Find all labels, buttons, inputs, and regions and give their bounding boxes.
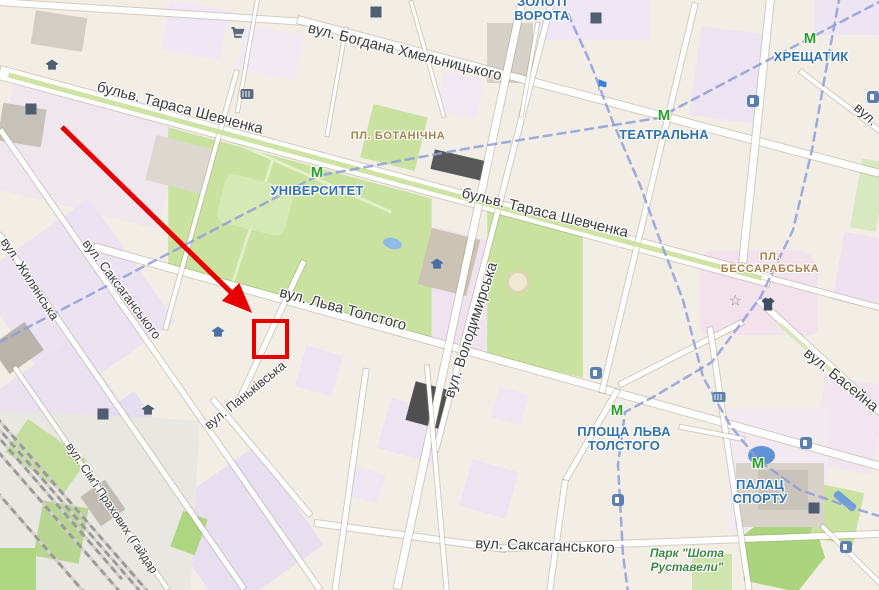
metro-station-ploshcha-lva-tolstoho[interactable]: ПЛОЩА ЛЬВА ТОЛСТОГО — [577, 425, 670, 453]
bank-icon[interactable] — [713, 392, 726, 402]
area-label-pl-bessarabska: ПЛ. БЕССАРАБСЬКА — [721, 251, 820, 275]
building-icon[interactable] — [26, 104, 37, 115]
metro-marker-universytet[interactable]: М — [311, 166, 324, 180]
metro-marker-teatralna[interactable]: М — [658, 109, 671, 123]
building-icon[interactable] — [809, 503, 820, 514]
transit-icon[interactable] — [840, 541, 852, 553]
transit-icon[interactable] — [747, 95, 759, 107]
transit-icon[interactable] — [590, 367, 602, 379]
metro-station-palats-sportu[interactable]: ПАЛАЦ СПОРТУ — [733, 478, 788, 506]
metro-station-teatralna[interactable]: ТЕАТРАЛЬНА — [619, 128, 709, 142]
area-label-pl-botanichna: ПЛ. БОТАНІЧНА — [351, 130, 446, 142]
metro-marker-palats-sportu[interactable]: М — [752, 457, 765, 471]
transit-icon[interactable] — [612, 494, 624, 506]
park-label-park-shota-rustaveli: Парк "Шота Руставели" — [650, 546, 724, 574]
transit-icon[interactable] — [867, 91, 879, 103]
flag-icon[interactable]: ⚑ — [596, 80, 609, 93]
map-canvas[interactable]: вул. Богдана Хмельницькогобульв. Тараса … — [0, 0, 879, 590]
transit-icon[interactable] — [800, 437, 812, 449]
metro-marker-ploshcha-lva-tolstoho[interactable]: М — [611, 404, 624, 418]
star-icon[interactable]: ☆ — [729, 295, 742, 308]
highlight-box — [252, 319, 289, 359]
metro-station-zoloti-vorota[interactable]: ЗОЛОТІ ВОРОТА — [514, 0, 570, 23]
building-icon[interactable] — [98, 409, 109, 420]
building-icon[interactable] — [591, 13, 602, 24]
bank-icon[interactable] — [241, 89, 254, 99]
building-icon[interactable] — [371, 7, 382, 18]
pointer-arrow — [62, 127, 247, 308]
metro-marker-khreshchatyk[interactable]: М — [804, 32, 817, 46]
metro-station-universytet[interactable]: УНІВЕРСИТЕТ — [271, 184, 364, 198]
metro-station-khreshchatyk[interactable]: ХРЕЩАТИК — [774, 50, 849, 64]
